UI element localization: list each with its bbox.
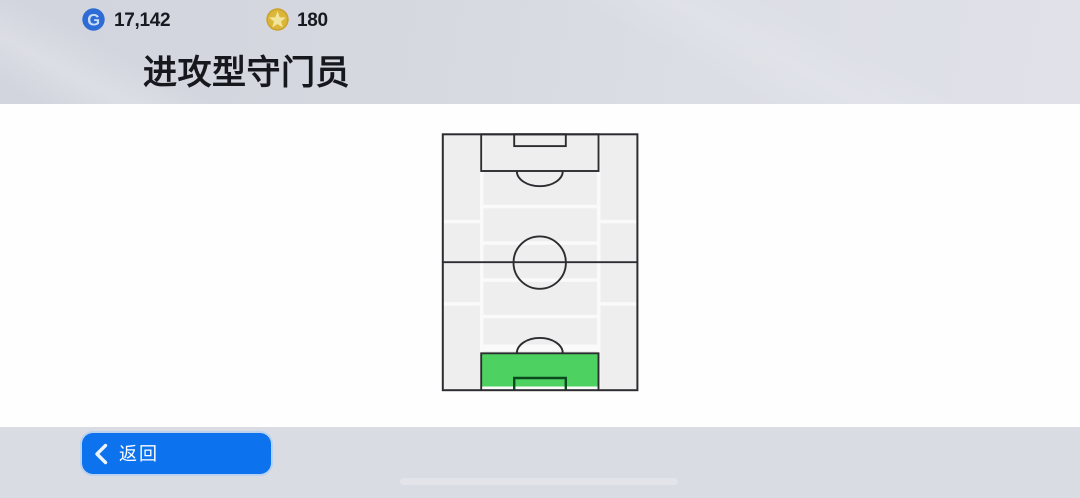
svg-text:G: G — [87, 11, 100, 29]
